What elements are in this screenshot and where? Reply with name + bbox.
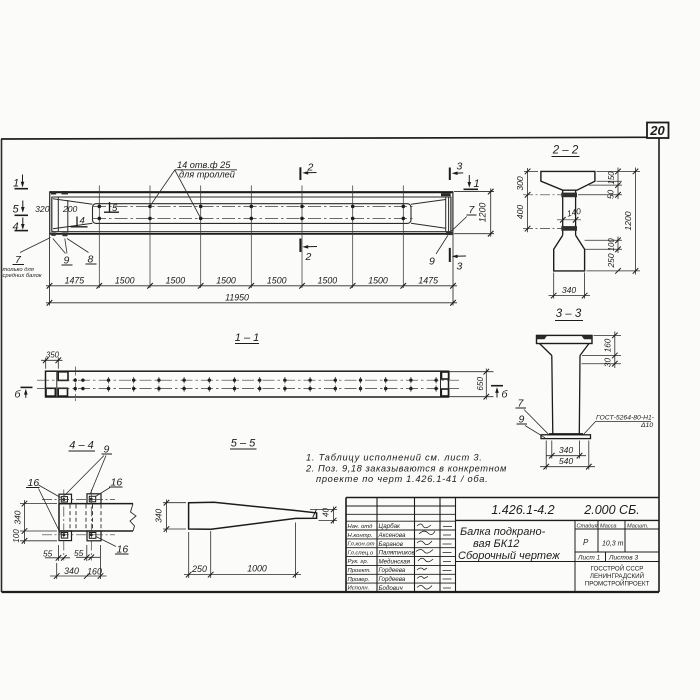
- svg-text:2: 2: [307, 161, 314, 173]
- svg-text:320: 320: [35, 204, 50, 214]
- svg-text:Δ10: Δ10: [640, 422, 653, 429]
- svg-text:14 отв.ф 25: 14 отв.ф 25: [177, 160, 231, 170]
- svg-text:для троллей: для троллей: [179, 170, 235, 180]
- svg-text:Гордеева: Гордеева: [379, 567, 406, 574]
- svg-text:40: 40: [321, 508, 330, 517]
- svg-text:650: 650: [476, 377, 485, 391]
- svg-text:ГОССТРОЙ СССР: ГОССТРОЙ СССР: [591, 565, 644, 573]
- svg-text:10,3 т: 10,3 т: [602, 541, 624, 548]
- svg-text:Бодович: Бодович: [379, 585, 404, 592]
- svg-text:540: 540: [559, 456, 574, 466]
- svg-text:3 – 3: 3 – 3: [556, 308, 582, 320]
- svg-text:1000: 1000: [247, 564, 267, 574]
- svg-text:1500: 1500: [115, 276, 135, 286]
- svg-text:5: 5: [112, 203, 118, 214]
- svg-text:2.000 СБ.: 2.000 СБ.: [583, 503, 639, 517]
- svg-text:300: 300: [515, 176, 525, 191]
- svg-text:340: 340: [12, 510, 22, 524]
- svg-text:100: 100: [607, 238, 616, 252]
- svg-text:2. Поз. 9,18 заказываются в ко: 2. Поз. 9,18 заказываются в конкретном: [305, 464, 507, 474]
- svg-text:5 – 5: 5 – 5: [231, 438, 256, 450]
- svg-text:1500: 1500: [318, 276, 338, 286]
- svg-text:средних балок: средних балок: [3, 273, 42, 279]
- svg-text:только для: только для: [3, 267, 34, 273]
- svg-text:9: 9: [429, 256, 435, 268]
- svg-text:340: 340: [154, 508, 164, 522]
- svg-text:Аксенова: Аксенова: [378, 532, 406, 539]
- svg-text:50: 50: [606, 190, 616, 200]
- svg-text:1200: 1200: [623, 211, 633, 230]
- svg-text:350: 350: [46, 351, 60, 360]
- svg-text:30: 30: [604, 358, 613, 368]
- svg-text:340: 340: [562, 285, 577, 295]
- svg-text:3: 3: [457, 261, 463, 273]
- svg-text:Масшт.: Масшт.: [627, 524, 648, 530]
- svg-text:Царбак: Царбак: [379, 523, 402, 530]
- svg-text:340: 340: [559, 445, 574, 455]
- svg-text:2: 2: [305, 251, 312, 263]
- svg-text:200: 200: [62, 204, 78, 214]
- svg-text:Листов 3: Листов 3: [608, 555, 638, 562]
- svg-text:250: 250: [191, 564, 207, 574]
- svg-text:160: 160: [604, 338, 613, 352]
- svg-text:Провер.: Провер.: [348, 577, 370, 583]
- svg-text:1 – 1: 1 – 1: [235, 332, 259, 344]
- svg-text:Палятников: Палятников: [379, 550, 416, 557]
- svg-text:55: 55: [74, 548, 84, 558]
- svg-text:1500: 1500: [216, 276, 236, 286]
- svg-text:Сборочный чертеж: Сборочный чертеж: [458, 550, 560, 562]
- svg-text:Р: Р: [583, 538, 589, 547]
- svg-text:1500: 1500: [166, 276, 186, 286]
- svg-text:Гл.кон.от: Гл.кон.от: [348, 542, 375, 548]
- svg-text:Стадия: Стадия: [577, 524, 598, 530]
- svg-text:1475: 1475: [65, 276, 85, 286]
- svg-text:160: 160: [87, 567, 102, 577]
- svg-text:проекте по черт 1.426.1-41: проекте по черт 1.426.1-41 / оба.: [316, 474, 488, 484]
- svg-text:4 – 4: 4 – 4: [69, 440, 93, 452]
- svg-text:1500: 1500: [267, 276, 287, 286]
- svg-text:Лист 1: Лист 1: [577, 555, 601, 562]
- svg-text:ГОСТ-5264-80-Н1-: ГОСТ-5264-80-Н1-: [596, 415, 655, 422]
- svg-text:Проект.: Проект.: [348, 568, 371, 574]
- svg-text:2 – 2: 2 – 2: [552, 145, 579, 157]
- svg-text:100: 100: [12, 529, 21, 543]
- svg-text:1: 1: [13, 178, 19, 190]
- svg-text:Гл.спец.о: Гл.спец.о: [348, 550, 374, 556]
- svg-text:Баранов: Баранов: [379, 541, 404, 548]
- svg-text:Рук. гр.: Рук. гр.: [348, 559, 369, 565]
- svg-text:Нач. отд: Нач. отд: [348, 524, 374, 530]
- svg-text:250: 250: [606, 253, 616, 268]
- svg-text:1: 1: [474, 178, 480, 190]
- svg-text:Гордеева: Гордеева: [379, 576, 406, 583]
- svg-text:3: 3: [457, 161, 463, 173]
- svg-text:11950: 11950: [225, 293, 249, 303]
- svg-text:1200: 1200: [478, 203, 488, 223]
- svg-text:ЛЕНИНГРАДСКИЙ: ЛЕНИНГРАДСКИЙ: [590, 572, 644, 580]
- svg-text:20: 20: [649, 123, 665, 138]
- svg-text:5: 5: [13, 204, 20, 216]
- svg-text:Исполн.: Исполн.: [348, 586, 370, 592]
- svg-text:Мединская: Мединская: [379, 558, 411, 565]
- svg-text:1. Таблицу исполнений см. лис: 1. Таблицу исполнений см. лист 3.: [306, 453, 483, 463]
- svg-text:Н.контр.: Н.контр.: [348, 533, 373, 539]
- svg-text:1500: 1500: [368, 276, 388, 286]
- svg-text:ПРОМСТРОЙПРОЕКТ: ПРОМСТРОЙПРОЕКТ: [585, 580, 650, 588]
- svg-text:вая БК12: вая БК12: [473, 538, 519, 550]
- svg-text:340: 340: [64, 566, 79, 576]
- svg-text:4: 4: [80, 215, 85, 226]
- svg-text:Масса: Масса: [600, 524, 617, 530]
- svg-text:150: 150: [607, 171, 616, 185]
- svg-text:55: 55: [43, 549, 53, 559]
- svg-text:400: 400: [515, 205, 525, 220]
- svg-text:Балка подкрано-: Балка подкрано-: [460, 526, 546, 538]
- svg-text:1475: 1475: [418, 276, 438, 286]
- svg-text:1.426.1-4.2: 1.426.1-4.2: [491, 503, 554, 517]
